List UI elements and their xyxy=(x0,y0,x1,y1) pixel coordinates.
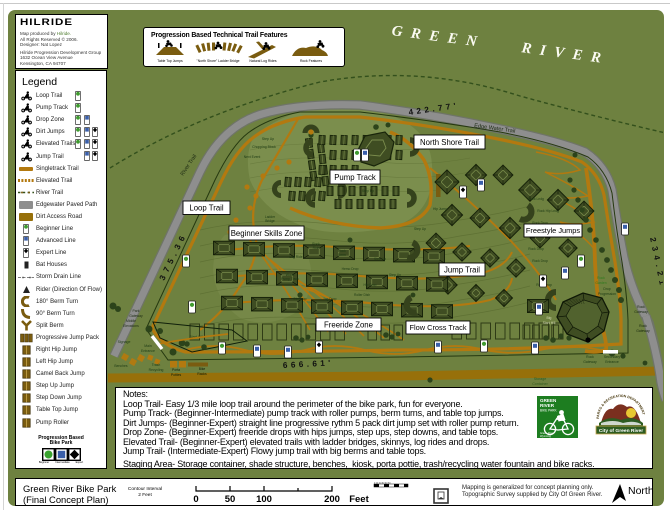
svg-text:Step Up: Step Up xyxy=(374,257,386,261)
svg-text:Rock Drop: Rock Drop xyxy=(528,247,544,251)
svg-text:Garden: Garden xyxy=(595,281,606,285)
svg-text:Gateway: Gateway xyxy=(636,329,650,333)
svg-text:Step Up: Step Up xyxy=(414,227,426,231)
svg-text:Bike: Bike xyxy=(199,367,206,371)
svg-text:Rock Drop: Rock Drop xyxy=(532,259,548,263)
svg-text:Dbl Drop: Dbl Drop xyxy=(293,297,306,301)
svg-text:Entrance: Entrance xyxy=(605,360,619,364)
svg-text:200: 200 xyxy=(324,494,340,505)
svg-text:Gateway: Gateway xyxy=(129,314,143,318)
svg-text:Recycling: Recycling xyxy=(149,368,164,372)
svg-text:Hip Jump: Hip Jump xyxy=(433,207,447,211)
svg-text:Wyoming: Wyoming xyxy=(540,434,551,438)
svg-text:Lrg Drop: Lrg Drop xyxy=(324,297,337,301)
svg-text:Freeride Zone: Freeride Zone xyxy=(324,320,373,329)
svg-text:Park: Park xyxy=(133,309,140,313)
svg-text:"North Shore" Ladder Bridge: "North Shore" Ladder Bridge xyxy=(197,59,240,63)
svg-text:Step Up: Step Up xyxy=(362,189,374,193)
svg-text:Loop Trail: Loop Trail xyxy=(189,204,224,213)
svg-text:Benches: Benches xyxy=(114,364,127,368)
svg-text:Log Ride: Log Ride xyxy=(289,255,302,259)
svg-text:BIKE PARK: BIKE PARK xyxy=(540,409,557,413)
svg-text:Berm: Berm xyxy=(338,253,346,257)
svg-text:Rock: Rock xyxy=(597,276,605,280)
svg-text:Middle: Middle xyxy=(126,319,136,323)
svg-text:234.21': 234.21' xyxy=(648,237,669,297)
svg-text:Jump Trail: Jump Trail xyxy=(444,265,480,274)
svg-text:Container: Container xyxy=(532,382,548,386)
svg-text:Rock Hip Lndg: Rock Hip Lndg xyxy=(537,209,559,213)
svg-text:North Shore Trail: North Shore Trail xyxy=(420,138,479,147)
svg-text:666.61': 666.61' xyxy=(283,358,334,370)
svg-text:Racks: Racks xyxy=(197,372,207,376)
svg-text:Flow Cross Track: Flow Cross Track xyxy=(409,323,466,332)
svg-text:Rock: Rock xyxy=(639,324,647,328)
svg-text:Progression: Progression xyxy=(598,292,616,296)
svg-text:Roller Dish: Roller Dish xyxy=(354,293,370,297)
svg-text:Trash: Trash xyxy=(152,363,161,367)
svg-text:Drop: Drop xyxy=(603,287,610,291)
svg-text:Signage: Signage xyxy=(118,340,131,344)
svg-text:Gateway: Gateway xyxy=(583,360,597,364)
svg-text:Rock: Rock xyxy=(637,305,645,309)
svg-text:Hemo Drop: Hemo Drop xyxy=(342,267,359,271)
svg-text:RIVER: RIVER xyxy=(540,403,555,408)
svg-text:Table Top Jumps: Table Top Jumps xyxy=(157,59,183,63)
svg-text:Rock: Rock xyxy=(586,355,594,359)
svg-text:0: 0 xyxy=(193,494,198,505)
svg-text:Gateway: Gateway xyxy=(634,310,648,314)
svg-text:Rock Lndg: Rock Lndg xyxy=(528,197,544,201)
svg-text:Elevations: Elevations xyxy=(123,324,139,328)
svg-text:Step Up: Step Up xyxy=(262,137,274,141)
svg-text:100: 100 xyxy=(256,494,272,505)
svg-text:Natural Log Rides: Natural Log Rides xyxy=(249,59,276,63)
svg-text:Step Up: Step Up xyxy=(389,273,401,277)
svg-text:Storage: Storage xyxy=(534,377,547,381)
svg-text:Freestyle Jumps: Freestyle Jumps xyxy=(526,226,581,235)
svg-text:Pump Track: Pump Track xyxy=(281,277,299,281)
svg-text:Beginner Skills Zone: Beginner Skills Zone xyxy=(231,229,303,238)
svg-text:Hip Drop: Hip Drop xyxy=(363,283,376,287)
svg-text:Ride: Ride xyxy=(313,246,320,250)
svg-text:Feet: Feet xyxy=(349,494,369,505)
svg-text:Secondary: Secondary xyxy=(604,355,621,359)
svg-text:Entrance: Entrance xyxy=(141,349,155,353)
svg-text:Big: Big xyxy=(547,316,552,320)
svg-text:Pump Track: Pump Track xyxy=(334,173,376,182)
svg-text:Rock Features: Rock Features xyxy=(300,59,322,63)
svg-text:Chopping Block: Chopping Block xyxy=(252,145,276,149)
svg-text:Potties: Potties xyxy=(171,373,182,377)
svg-text:GREEN RIVER: GREEN RIVER xyxy=(391,23,611,67)
svg-text:50: 50 xyxy=(225,494,236,505)
svg-text:Bridge: Bridge xyxy=(265,219,275,223)
svg-text:City of Green River: City of Green River xyxy=(599,428,643,434)
svg-text:0 10 20 30 40 50: 0 10 20 30 40 50 xyxy=(374,483,391,485)
svg-text:Porta: Porta xyxy=(172,368,180,372)
svg-text:Main: Main xyxy=(144,344,152,348)
svg-text:Next Event: Next Event xyxy=(244,155,261,159)
svg-text:Start Hill: Start Hill xyxy=(543,321,556,325)
